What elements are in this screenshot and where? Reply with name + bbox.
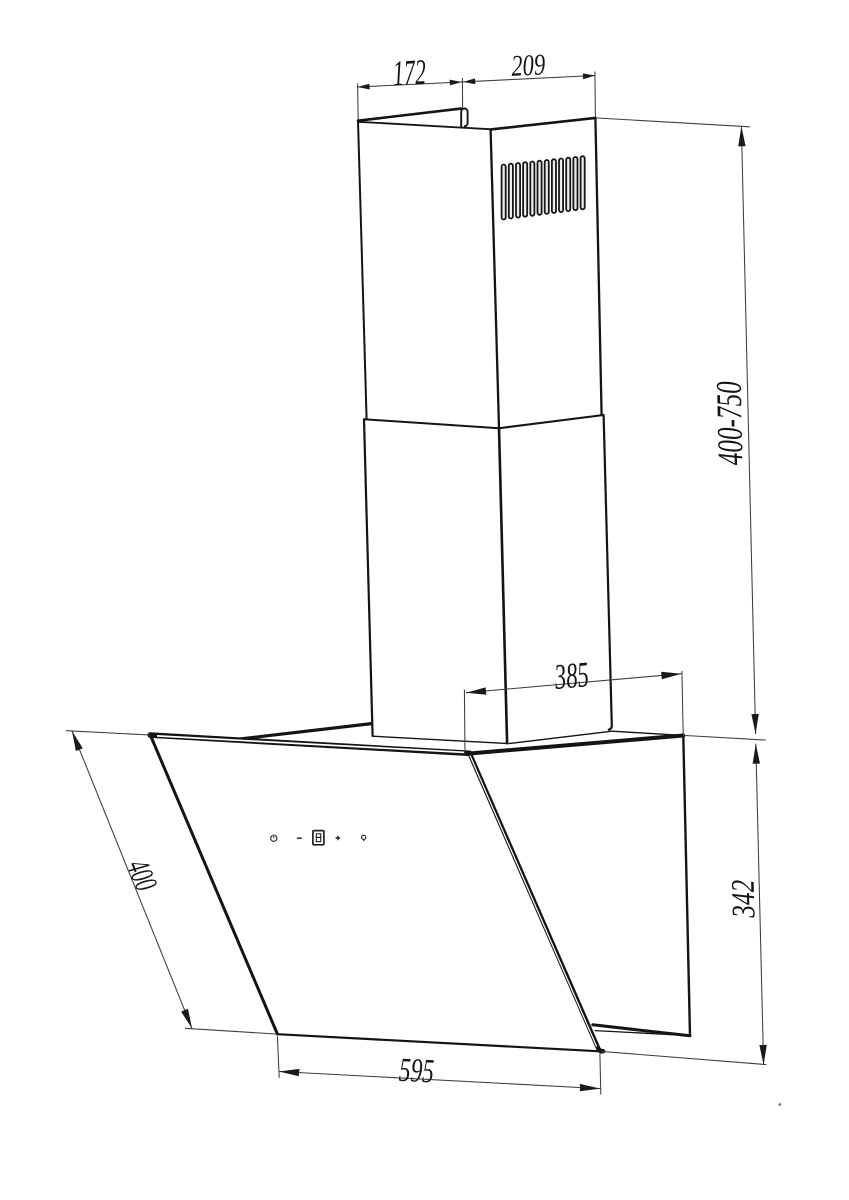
svg-text:400-750: 400-750 xyxy=(709,381,751,466)
svg-text:209: 209 xyxy=(510,48,546,83)
svg-text:595: 595 xyxy=(398,1052,435,1091)
svg-text:385: 385 xyxy=(552,654,590,697)
svg-text:342: 342 xyxy=(726,879,763,919)
svg-text:172: 172 xyxy=(392,52,427,94)
